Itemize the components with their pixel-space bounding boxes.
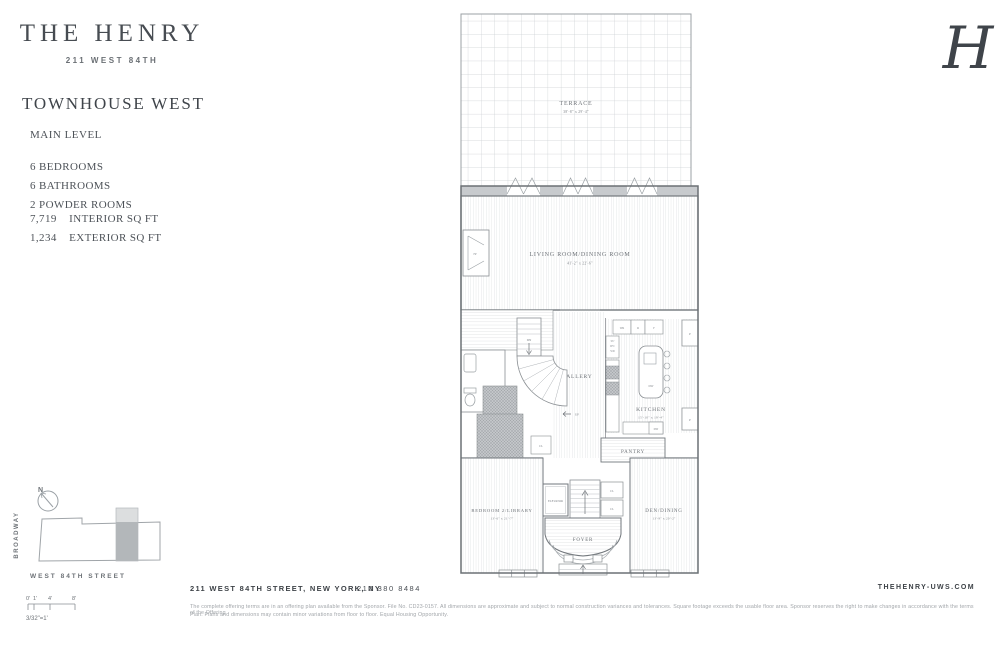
kitchen-label: KITCHEN [636,407,666,413]
svg-text:UP: UP [575,413,579,417]
feature-list: 6 BEDROOMS 6 BATHROOMS 2 POWDER ROOMS [30,158,132,215]
elevator-label: ELEVATOR [548,499,563,503]
stair-down: DN [517,318,541,356]
fireplace-icon: FP [463,230,489,276]
svg-text:CL: CL [610,489,614,493]
svg-text:WD: WD [610,350,614,353]
feature-bathrooms: 6 BATHROOMS [30,177,132,196]
den-dims: 13'-9" x 20'-2" [652,517,676,521]
brand-block: THE HENRY 211 WEST 84TH [12,20,212,65]
svg-text:4': 4' [48,596,52,602]
interior-sqft-row: 7,719 INTERIOR SQ FT [30,210,162,229]
svg-text:0': 0' [26,596,30,602]
kitchen-counter: DW [623,422,663,434]
bedroom2-label: BEDROOM 2/LIBRARY [471,508,532,513]
svg-text:CL: CL [610,507,614,511]
brand-address: 211 WEST 84TH [12,56,212,65]
svg-text:DW: DW [649,384,654,388]
street-label: WEST 84TH STREET [30,573,126,580]
bedroom2-area [461,458,543,573]
footer-phone: 212 380 8484 [357,584,421,593]
unit-level: MAIN LEVEL [30,129,102,141]
terrace-area [461,14,691,186]
floor-plan: TERRACE 38'-8" x 29'-4" FP LIVING ROOM/D… [455,8,717,580]
feature-bedrooms: 6 BEDROOMS [30,158,132,177]
bedroom2-dims: 13'-6" x 21'-7" [490,517,514,521]
svg-text:R: R [637,327,639,330]
foyer-area: FOYER [545,518,621,564]
floorplan-sheet: THE HENRY 211 WEST 84TH TOWNHOUSE WEST M… [0,0,1000,645]
footer-address: 211 WEST 84TH STREET, NEW YORK, NY [190,584,381,593]
unit-title: TOWNHOUSE WEST [22,94,205,114]
storage-area [477,414,523,458]
brand-name: THE HENRY [12,20,212,48]
terrace-label: TERRACE [560,101,593,107]
broadway-label: BROADWAY [14,511,20,558]
kitchen-dims: 15'-10" x 19'-4" [638,416,664,420]
stair-up: UP [570,480,600,524]
terrace-dims: 38'-8" x 29'-4" [563,110,589,114]
svg-text:ST/: ST/ [611,340,615,343]
site-outline [39,518,160,561]
svg-text:1': 1' [33,596,37,602]
svg-text:WR: WR [620,327,625,330]
key-plan: N BROADWAY WEST 84TH STREET 0' 1' 4' 8' … [8,475,188,635]
den-label: DEN/DINING [645,509,682,514]
disclaimer-line2: Plan. Plans and dimensions may contain m… [190,612,978,618]
elevator-area: ELEVATOR [543,484,568,516]
north-compass-icon: N [38,487,58,511]
svg-text:8': 8' [72,596,76,602]
living-room-dims: 41'-2" x 22'-6" [567,262,593,266]
scale-note: 3/32"=1' [26,616,48,622]
area-list: 7,719 INTERIOR SQ FT 1,234 EXTERIOR SQ F… [30,210,162,248]
svg-text:DW: DW [654,428,659,431]
closet-area: CL CL [601,482,623,516]
henry-monogram-icon: H [942,14,994,94]
scale-bar: 0' 1' 4' 8' 3/32"=1' [26,596,76,622]
den-area [630,458,698,573]
foyer-label: FOYER [573,538,593,543]
svg-text:DY/: DY/ [610,345,615,348]
interior-sqft-value: 7,719 [30,210,66,229]
exterior-sqft-value: 1,234 [30,229,66,248]
svg-text:CL: CL [539,444,543,448]
storage-area [483,386,517,416]
entry [559,555,607,575]
footer-website: THEHENRY-UWS.COM [878,584,975,591]
exterior-sqft-row: 1,234 EXTERIOR SQ FT [30,229,162,248]
svg-text:DN: DN [527,338,532,342]
living-room-label: LIVING ROOM/DINING ROOM [529,252,630,258]
exterior-sqft-label: EXTERIOR SQ FT [69,232,161,244]
svg-text:FP: FP [473,253,477,256]
closet-area: CL [531,436,551,454]
pantry-label: PANTRY [621,450,645,455]
interior-sqft-label: INTERIOR SQ FT [69,213,158,225]
townhouse-highlight-dark [116,522,138,561]
